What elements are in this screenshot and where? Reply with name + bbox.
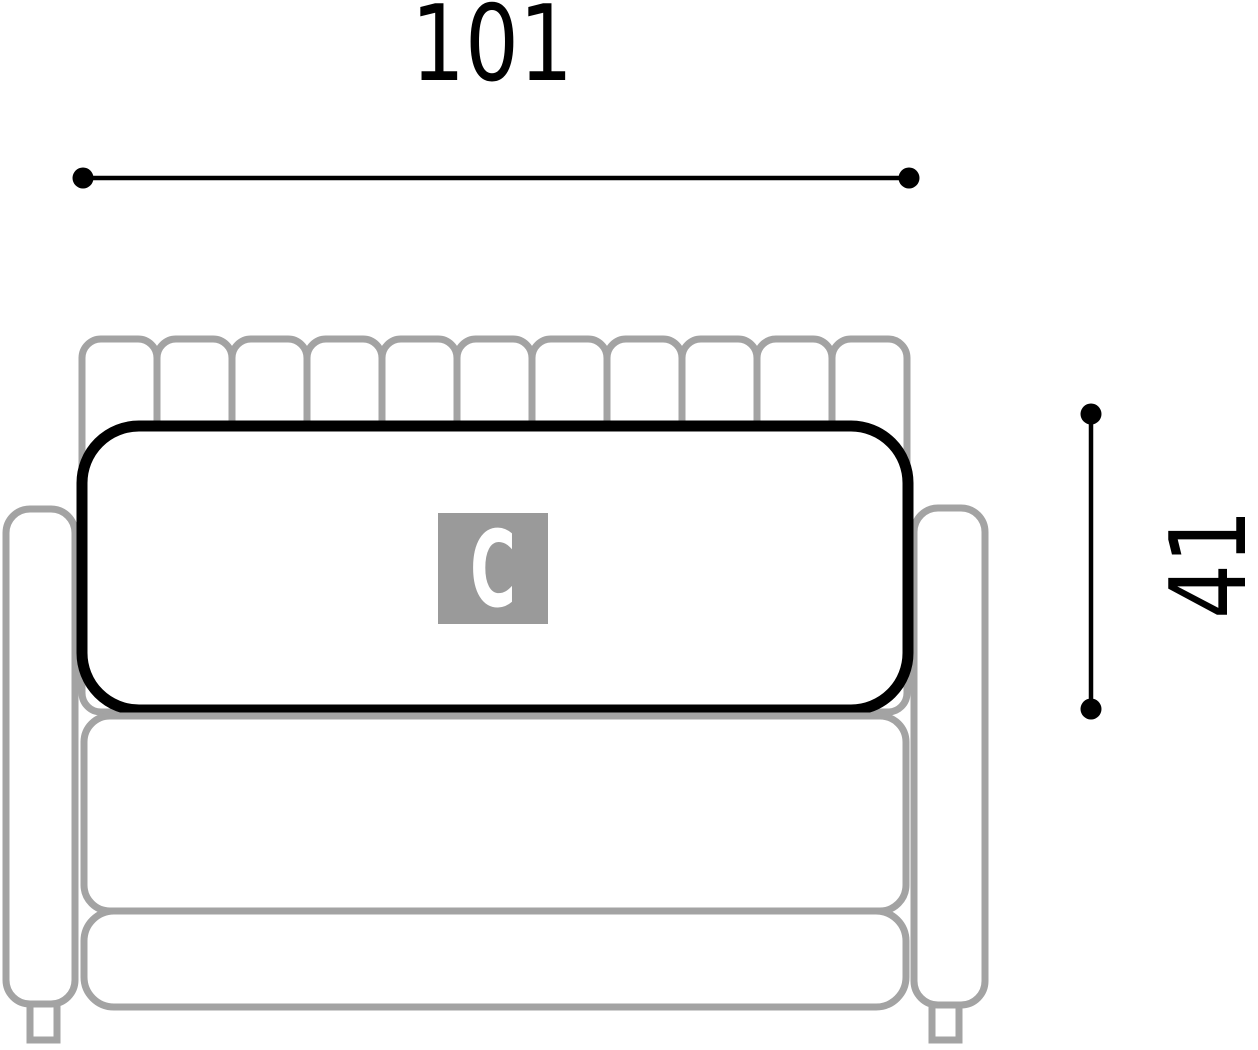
seat-cushion bbox=[84, 716, 906, 911]
module-label-text: C bbox=[470, 509, 516, 631]
left-armrest bbox=[6, 509, 75, 1004]
height-dimension-top-dot bbox=[1081, 404, 1102, 425]
width-dimension-value: 101 bbox=[411, 0, 573, 105]
diagram-canvas: C 101 41 bbox=[0, 0, 1258, 1050]
height-dimension-bottom-dot bbox=[1081, 699, 1102, 720]
right-armrest bbox=[914, 508, 985, 1005]
width-dimension-end-dot bbox=[899, 168, 920, 189]
width-dimension-start-dot bbox=[73, 168, 94, 189]
front-rail bbox=[84, 911, 906, 1007]
height-dimension-value: 41 bbox=[1148, 509, 1258, 619]
sofa-dimension-diagram: C 101 41 bbox=[0, 0, 1258, 1050]
